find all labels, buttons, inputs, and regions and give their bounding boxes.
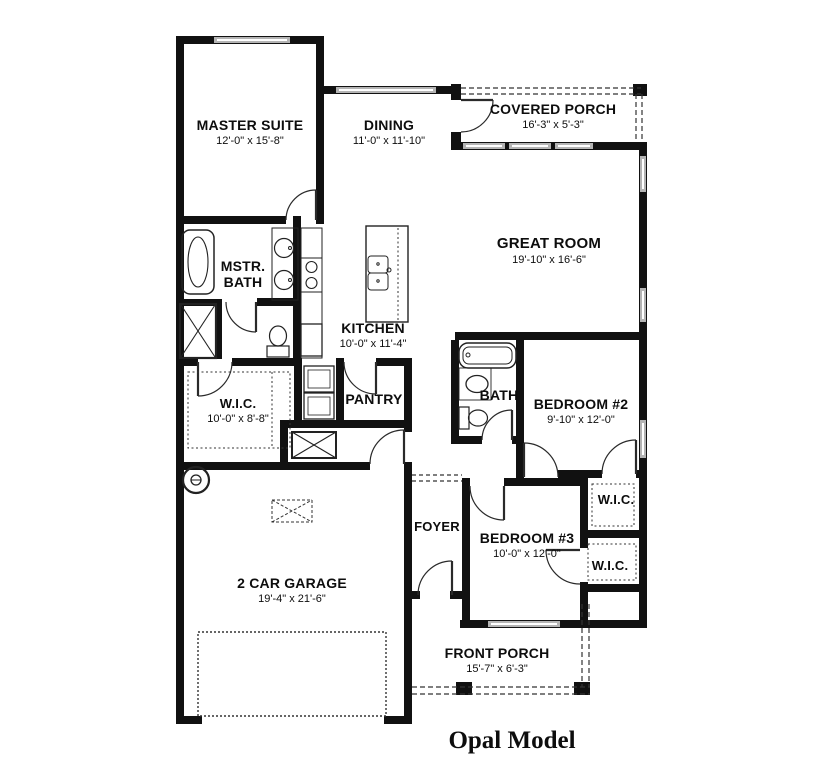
door-pantry [344, 362, 376, 394]
room-label-bedroom3: BEDROOM #3 10'-0" x 12'-0" [480, 531, 575, 560]
kitchen-fridge [301, 324, 322, 356]
master-bathtub [182, 230, 214, 294]
door-bedroom2 [524, 443, 558, 477]
door-garage-entry [370, 430, 404, 464]
room-label-bath2: BATH [480, 388, 519, 404]
plan-title: Opal Model [448, 727, 575, 755]
door-front-entry [418, 561, 452, 595]
door-master-suite [286, 190, 316, 220]
door-water-closet [226, 302, 256, 332]
window [488, 621, 560, 627]
bath2-toilet [459, 407, 488, 429]
door-bedroom3 [470, 486, 504, 520]
porch-post [574, 682, 590, 695]
kitchen-stove [301, 258, 322, 292]
washer-dryer [304, 366, 334, 419]
room-label-covered-porch: COVERED PORCH 16'-3" x 5'-3" [490, 102, 616, 131]
room-label-kitchen: KITCHEN 10'-0" x 11'-4" [340, 321, 407, 350]
window [463, 143, 505, 149]
room-label-great-room: GREAT ROOM 19'-10" x 16'-6" [497, 236, 601, 266]
master-toilet [267, 326, 289, 357]
island-sink [368, 256, 391, 290]
window [336, 87, 436, 93]
foyer-opening [412, 475, 462, 481]
bath2-tub [459, 343, 516, 368]
attic-access [272, 500, 312, 522]
water-heater [183, 467, 209, 493]
room-label-foyer: FOYER [414, 520, 460, 535]
room-label-wic-master: W.I.C. 10'-0" x 8'-8" [207, 397, 269, 425]
floor-plan: MASTER SUITE 12'-0" x 15'-8" DINING 11'-… [0, 0, 814, 776]
room-label-garage: 2 CAR GARAGE 19'-4" x 21'-6" [237, 576, 347, 605]
door-master-wic [198, 362, 232, 396]
window [555, 143, 593, 149]
window [640, 156, 646, 192]
door-wic-bed2 [602, 440, 636, 474]
window [640, 420, 646, 458]
room-label-master-suite: MASTER SUITE 12'-0" x 15'-8" [197, 118, 304, 147]
room-label-front-porch: FRONT PORCH 15'-7" x 6'-3" [445, 646, 550, 675]
door-covered-porch [461, 100, 493, 132]
hvac-unit [292, 432, 336, 458]
room-label-dining: DINING 11'-0" x 11'-10" [353, 118, 425, 147]
window [214, 37, 290, 43]
master-shower [180, 304, 216, 358]
garage-door [198, 632, 386, 716]
room-label-pantry: PANTRY [345, 392, 402, 408]
room-label-bedroom2: BEDROOM #2 9'-10" x 12'-0" [534, 397, 629, 426]
room-label-mstr-bath: MSTR. BATH [221, 259, 266, 290]
room-label-wic-bed3: W.I.C. [592, 559, 629, 574]
kitchen-counter [301, 228, 322, 358]
window [640, 288, 646, 322]
window [509, 143, 551, 149]
room-label-wic-bed2: W.I.C. [598, 493, 635, 508]
porch-post [456, 682, 472, 695]
